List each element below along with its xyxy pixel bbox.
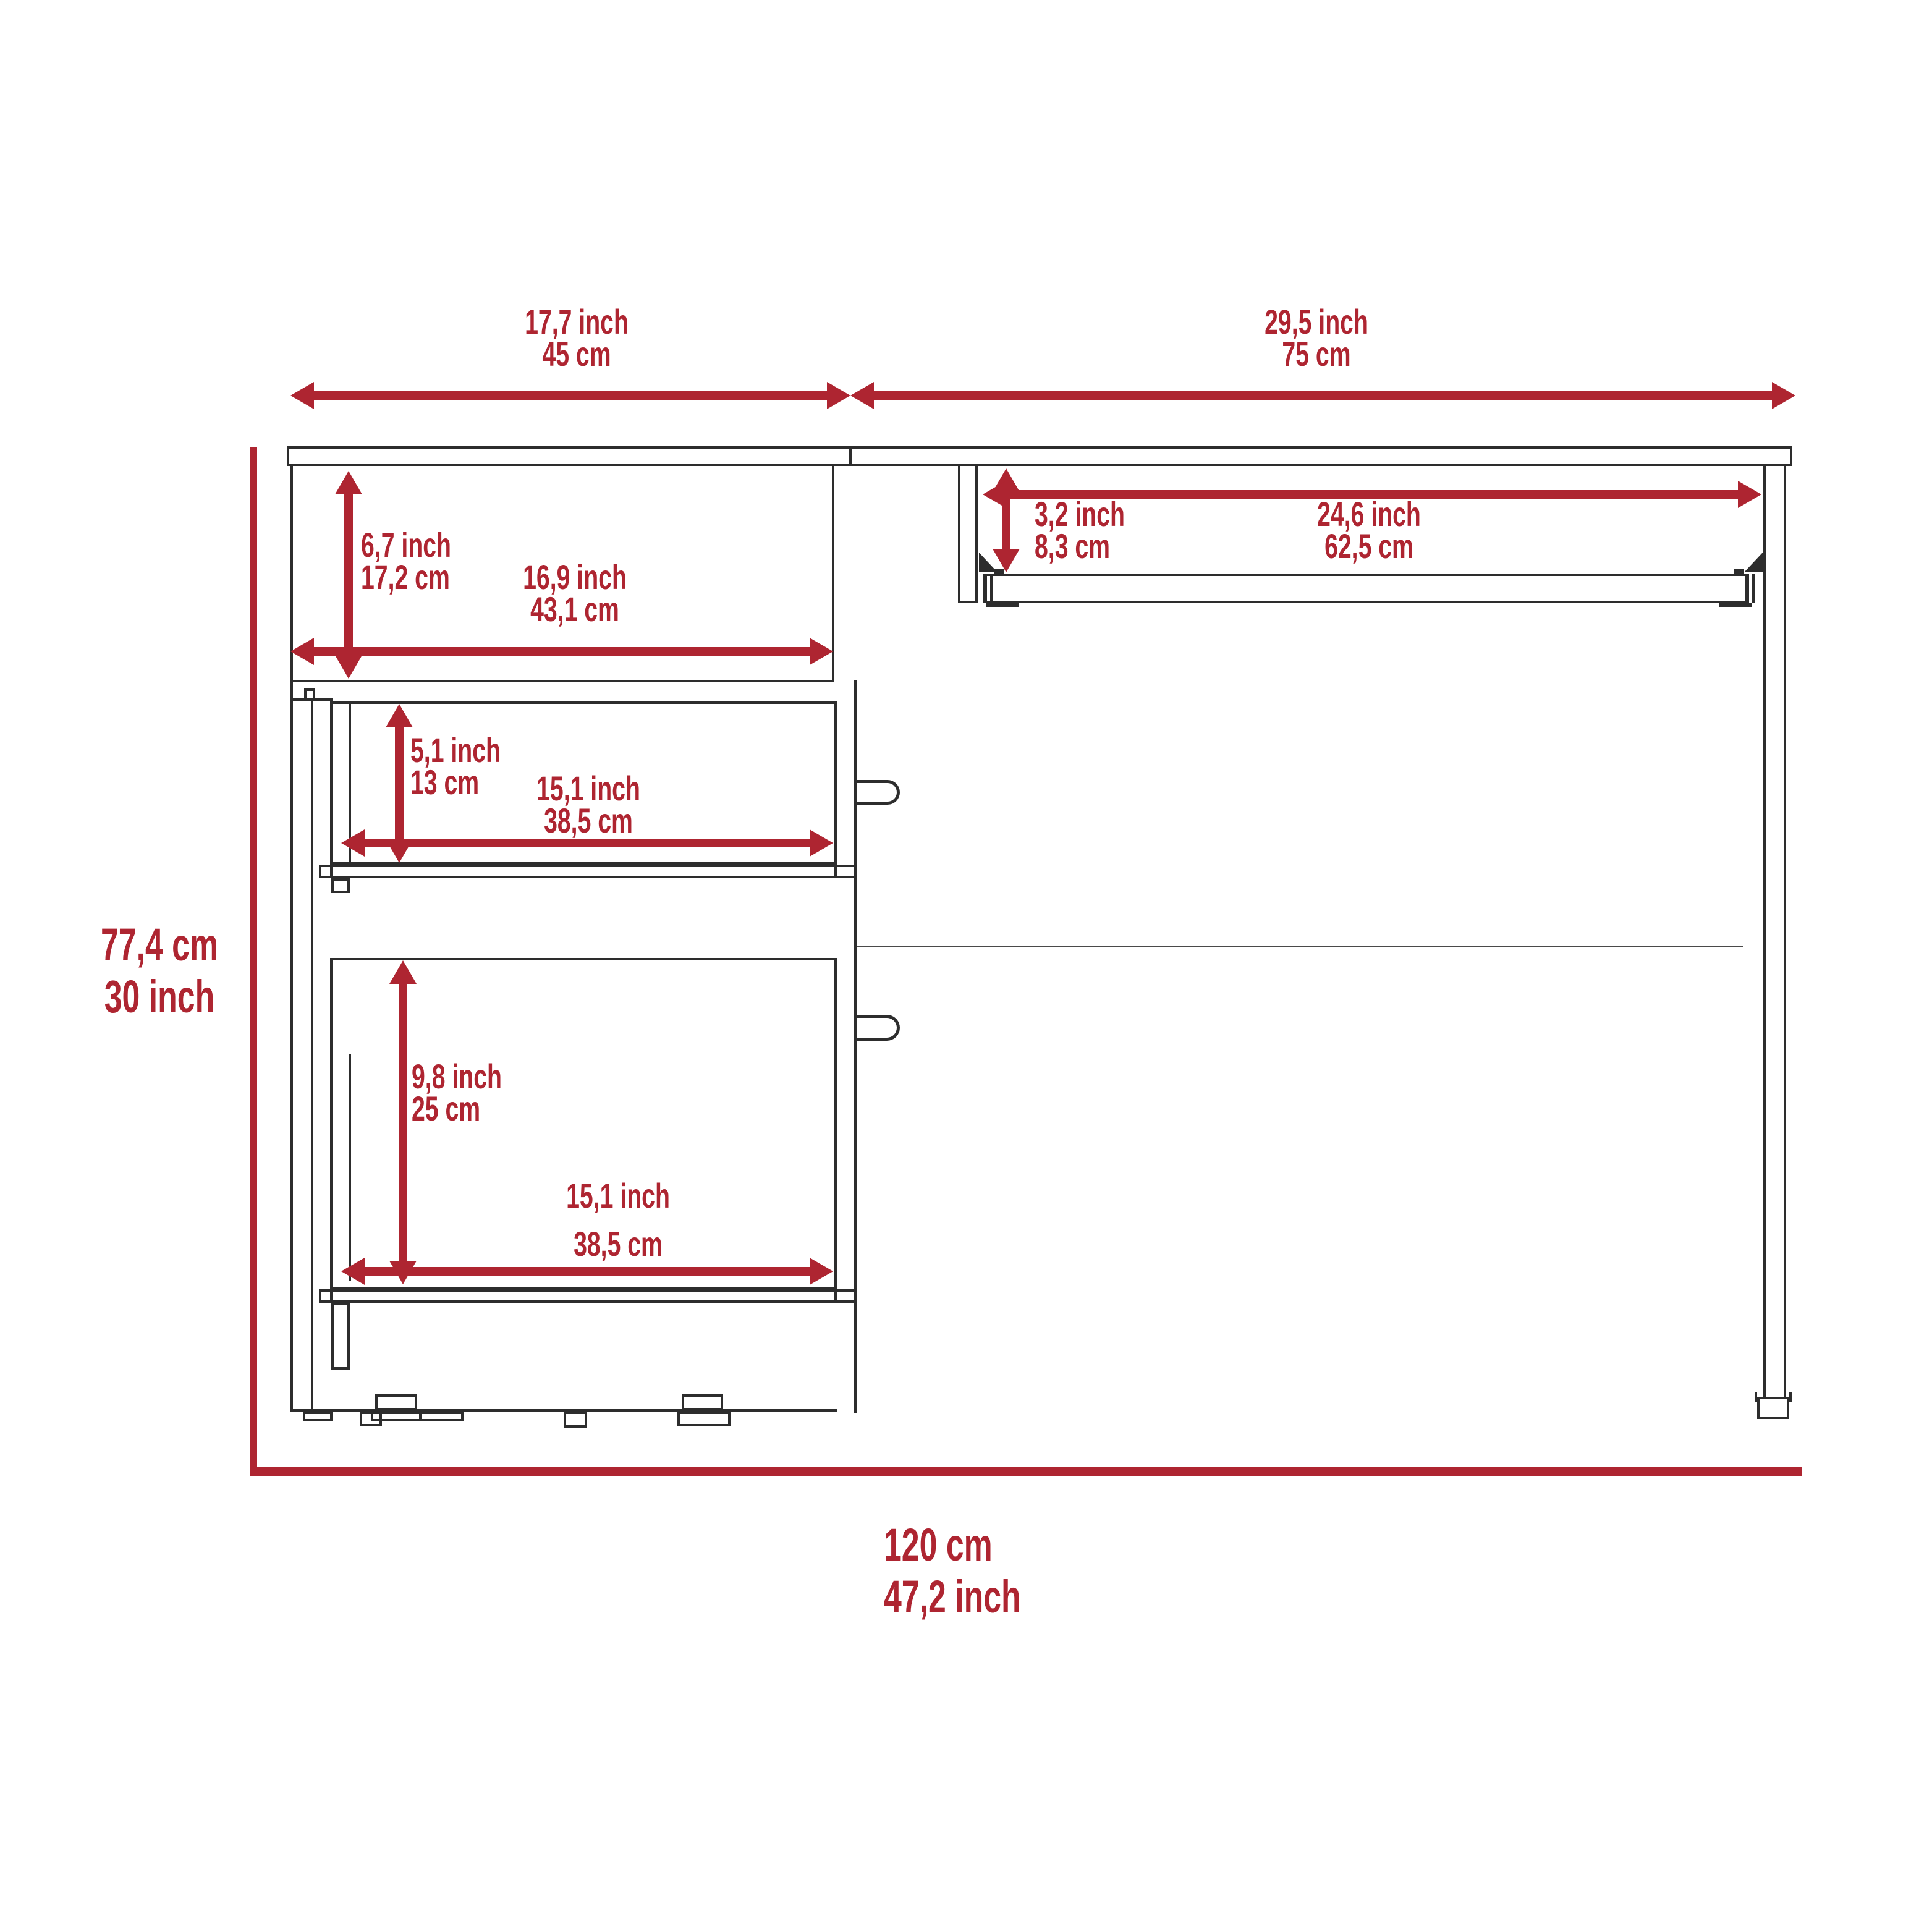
hinge-notch [304,688,315,700]
dim-value: 45 cm [525,338,629,370]
dim-value: 9,8 inch [412,1061,502,1093]
dim-label-tray-clearance: 3,2 inch 8,3 cm [1035,498,1125,562]
right-leg-foot [1757,1397,1789,1419]
dim-value: 16,9 inch [523,561,627,593]
bottom-shelf-band [319,1289,857,1303]
dim-value: 77,4 cm [101,919,218,971]
cabinet-glide-block-1 [375,1394,417,1410]
arrowhead-right-icon [810,1258,833,1285]
arrowhead-right-icon [810,638,833,665]
dim-label-drawer1-width: 15,1 inch 38,5 cm [536,773,640,837]
dim-arrow-top-right-width [850,370,1795,422]
cabinet-foot-4 [564,1412,587,1428]
dim-label-top-right-width: 29,5 inch 75 cm [1265,306,1368,370]
drawer-1-handle [857,780,900,805]
dim-label-overall-width: 120 cm 47,2 inch [884,1519,1021,1623]
dim-label-drawer2-width: 15,1 inch 38,5 cm [566,1172,670,1268]
dim-label-drawer1-height: 5,1 inch 13 cm [410,734,501,799]
tray-slide-right-bracket [1744,553,1763,572]
cabinet-glide-block-2 [682,1394,723,1410]
right-leg-front-line [1763,466,1766,1397]
dim-value: 38,5 cm [566,1220,670,1268]
divider-panel-bottom-cap [958,601,978,603]
back-stretcher-line [857,946,1743,947]
dim-value: 24,6 inch [1317,498,1421,530]
dim-arrow-top-left-width [290,370,850,422]
dim-label-drawer2-height: 9,8 inch 25 cm [412,1061,502,1125]
overall-height-line [250,447,257,1476]
right-leg-back-line [1784,466,1786,1397]
keyboard-tray [983,574,1749,603]
desktop-panel [287,446,1792,466]
dim-value: 15,1 inch [566,1172,670,1220]
divider-panel-right-line [975,466,978,603]
mid-shelf-cap-left [330,865,333,878]
arrowhead-right-icon [1738,481,1761,508]
dim-label-overall-height: 77,4 cm 30 inch [101,919,218,1023]
tray-slide-left-bar-2 [990,574,993,603]
dim-value: 30 inch [101,971,218,1023]
dim-label-top-left-width: 17,7 inch 45 cm [525,306,629,370]
tray-slide-right-pin [1734,569,1744,575]
drawer-2-rail-stub [331,1303,350,1370]
mid-shelf-band [319,865,857,878]
dim-value: 29,5 inch [1265,306,1368,338]
dim-label-open-shelf-width: 16,9 inch 43,1 cm [523,561,627,625]
dim-value: 62,5 cm [1317,530,1421,562]
cabinet-foot-5 [677,1412,731,1426]
drawer-2-rail [349,1054,351,1281]
bottom-shelf-cap-left [330,1289,333,1303]
arrowhead-down-icon [993,549,1020,572]
dim-value: 15,1 inch [536,773,640,805]
tray-slide-right-bar-2 [1752,574,1755,603]
cabinet-foot-3 [371,1412,464,1421]
cabinet-foot-3-divider [419,1412,422,1421]
dim-value: 47,2 inch [884,1571,1021,1623]
cabinet-inner-left-side [311,698,313,1410]
desk-dimension-diagram: 17,7 inch 45 cm 29,5 inch 75 cm 77,4 cm … [0,0,1932,1932]
cabinet-left-side [290,466,293,1412]
dim-label-open-shelf-height: 6,7 inch 17,2 cm [361,529,451,593]
dim-value: 43,1 cm [523,593,627,625]
dim-value: 6,7 inch [361,529,451,561]
dim-value: 13 cm [410,766,501,799]
arrowhead-right-icon [810,829,833,857]
dim-value: 25 cm [412,1093,502,1125]
right-leg-foot-flare-left [1755,1392,1757,1402]
right-leg-foot-flare-right [1789,1392,1792,1402]
cabinet-foot-1 [303,1412,333,1421]
mid-shelf-cap-right [834,865,837,878]
tray-slide-right-bar-1 [1745,574,1748,603]
drawer-1-rail-stub [331,878,350,893]
tray-slide-right-foot [1719,603,1752,607]
tray-slide-left-bar-1 [984,574,987,603]
arrowhead-right-icon [827,382,850,409]
divider-panel-left-line [958,466,960,603]
dim-value: 8,3 cm [1035,530,1125,562]
drawer-2-handle [857,1015,900,1041]
arrowhead-right-icon [1772,382,1795,409]
desktop-joint-line [849,446,852,466]
open-shelf-floor [290,680,834,682]
dim-value: 17,7 inch [525,306,629,338]
dim-value: 38,5 cm [536,805,640,837]
dim-value: 5,1 inch [410,734,501,766]
dim-label-tray-width: 24,6 inch 62,5 cm [1317,498,1421,562]
dim-value: 17,2 cm [361,561,451,593]
dim-arrow-open-shelf-width [290,633,833,670]
dim-value: 120 cm [884,1519,1021,1571]
overall-width-line [250,1467,1802,1476]
bottom-shelf-cap-right [834,1289,837,1303]
dim-value: 3,2 inch [1035,498,1125,530]
dim-value: 75 cm [1265,338,1368,370]
tray-slide-left-foot [986,603,1019,607]
